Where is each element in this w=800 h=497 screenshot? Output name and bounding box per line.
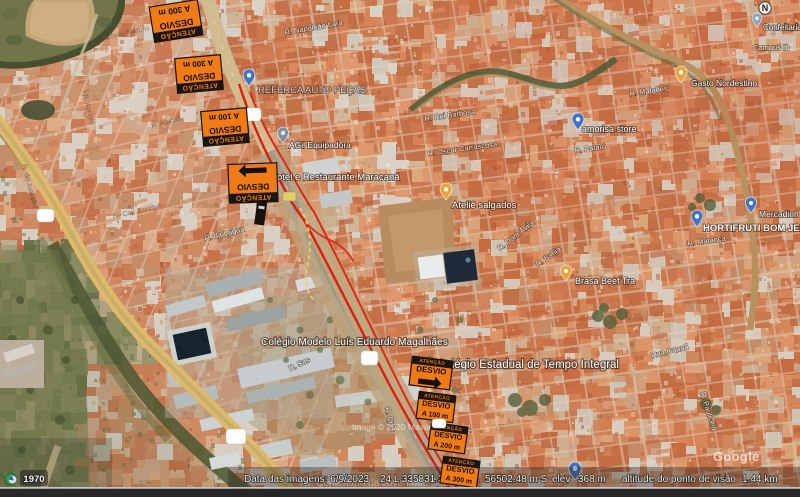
svg-text:Google: Google [713, 449, 760, 464]
svg-text:56502.48 m S: 56502.48 m S [485, 474, 548, 485]
svg-text:DESVIO: DESVIO [237, 181, 270, 192]
svg-text:24 L 335831.3: 24 L 335831.3 [380, 474, 444, 485]
svg-text:1.44 km: 1.44 km [742, 474, 778, 485]
svg-text:Colégio Modelo Luís Eduardo Ma: Colégio Modelo Luís Eduardo Magalhães [261, 337, 448, 348]
svg-text:1970: 1970 [23, 474, 44, 485]
svg-text:AGil Equipadora: AGil Equipadora [289, 140, 351, 150]
svg-text:Mercadinh: Mercadinh [759, 209, 799, 219]
svg-text:Data das imagens: 6/9/2023: Data das imagens: 6/9/2023 [244, 474, 370, 485]
svg-text:elev: elev [552, 474, 570, 485]
svg-text:368 m: 368 m [578, 474, 606, 485]
svg-text:Brasa Beef Tra: Brasa Beef Tra [575, 276, 635, 286]
svg-text:HORTIFRUTI BOM JE: HORTIFRUTI BOM JE [703, 223, 800, 234]
svg-text:Campus Ib: Campus Ib [753, 43, 789, 52]
svg-text:Gasto Nordestino: Gasto Nordestino [691, 78, 757, 88]
svg-text:N: N [762, 3, 769, 13]
svg-text:altitude do ponto de visão: altitude do ponto de visão [622, 474, 736, 485]
svg-text:Colégio Estadual de Tempo Inte: Colégio Estadual de Tempo Integral [437, 359, 619, 371]
svg-text:amorisa store: amorisa store [582, 124, 637, 134]
svg-text:Confeitaria N: Confeitaria N [763, 23, 800, 32]
svg-text:Ateliê salgados: Ateliê salgados [452, 200, 517, 211]
svg-text:otel e Restaurante Maracanã: otel e Restaurante Maracanã [277, 172, 400, 183]
svg-text:REFERCA AUTO PEÇAS: REFERCA AUTO PEÇAS [258, 85, 366, 96]
